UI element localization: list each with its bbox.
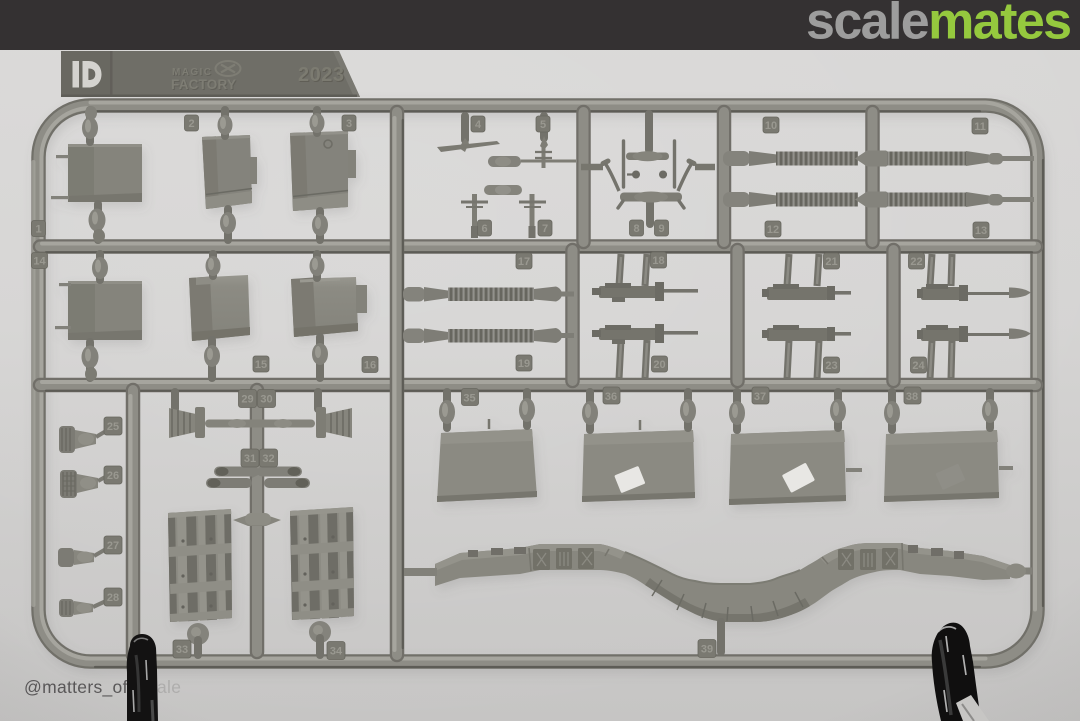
svg-text:19: 19 <box>518 358 530 370</box>
svg-text:24: 24 <box>912 360 925 372</box>
svg-text:14: 14 <box>33 256 46 268</box>
svg-text:27: 27 <box>107 540 119 552</box>
svg-text:33: 33 <box>176 644 188 656</box>
svg-text:ale: ale <box>157 677 181 697</box>
svg-text:15: 15 <box>255 359 267 371</box>
svg-text:22: 22 <box>910 256 922 268</box>
svg-text:29: 29 <box>241 394 253 406</box>
svg-text:2: 2 <box>188 118 194 130</box>
svg-text:17: 17 <box>518 256 530 268</box>
svg-text:23: 23 <box>825 360 837 372</box>
svg-text:30: 30 <box>260 394 272 406</box>
svg-text:1: 1 <box>35 224 41 236</box>
svg-text:scalemates: scalemates <box>806 0 1070 51</box>
svg-text:2023: 2023 <box>298 64 345 86</box>
svg-text:31: 31 <box>244 453 256 465</box>
svg-text:4: 4 <box>475 119 482 131</box>
svg-text:36: 36 <box>605 391 617 403</box>
svg-text:21: 21 <box>825 256 837 268</box>
svg-text:12: 12 <box>767 224 779 236</box>
svg-text:7: 7 <box>542 223 548 235</box>
svg-text:20: 20 <box>653 359 665 371</box>
svg-text:39: 39 <box>701 644 713 656</box>
svg-text:37: 37 <box>754 391 766 403</box>
svg-text:18: 18 <box>652 255 664 267</box>
svg-text:32: 32 <box>262 453 274 465</box>
svg-text:11: 11 <box>974 121 986 133</box>
svg-text:6: 6 <box>481 223 487 235</box>
svg-text:26: 26 <box>107 470 119 482</box>
svg-text:28: 28 <box>107 592 119 604</box>
svg-text:34: 34 <box>330 646 343 658</box>
svg-text:9: 9 <box>658 223 664 235</box>
svg-text:FACTORY: FACTORY <box>171 77 236 92</box>
svg-text:5: 5 <box>540 119 546 131</box>
svg-text:10: 10 <box>765 120 777 132</box>
svg-text:3: 3 <box>346 118 352 130</box>
svg-text:25: 25 <box>107 421 119 433</box>
svg-text:16: 16 <box>364 360 376 372</box>
svg-text:13: 13 <box>975 225 987 237</box>
svg-text:35: 35 <box>463 393 475 405</box>
svg-text:38: 38 <box>906 391 918 403</box>
svg-text:8: 8 <box>633 223 639 235</box>
